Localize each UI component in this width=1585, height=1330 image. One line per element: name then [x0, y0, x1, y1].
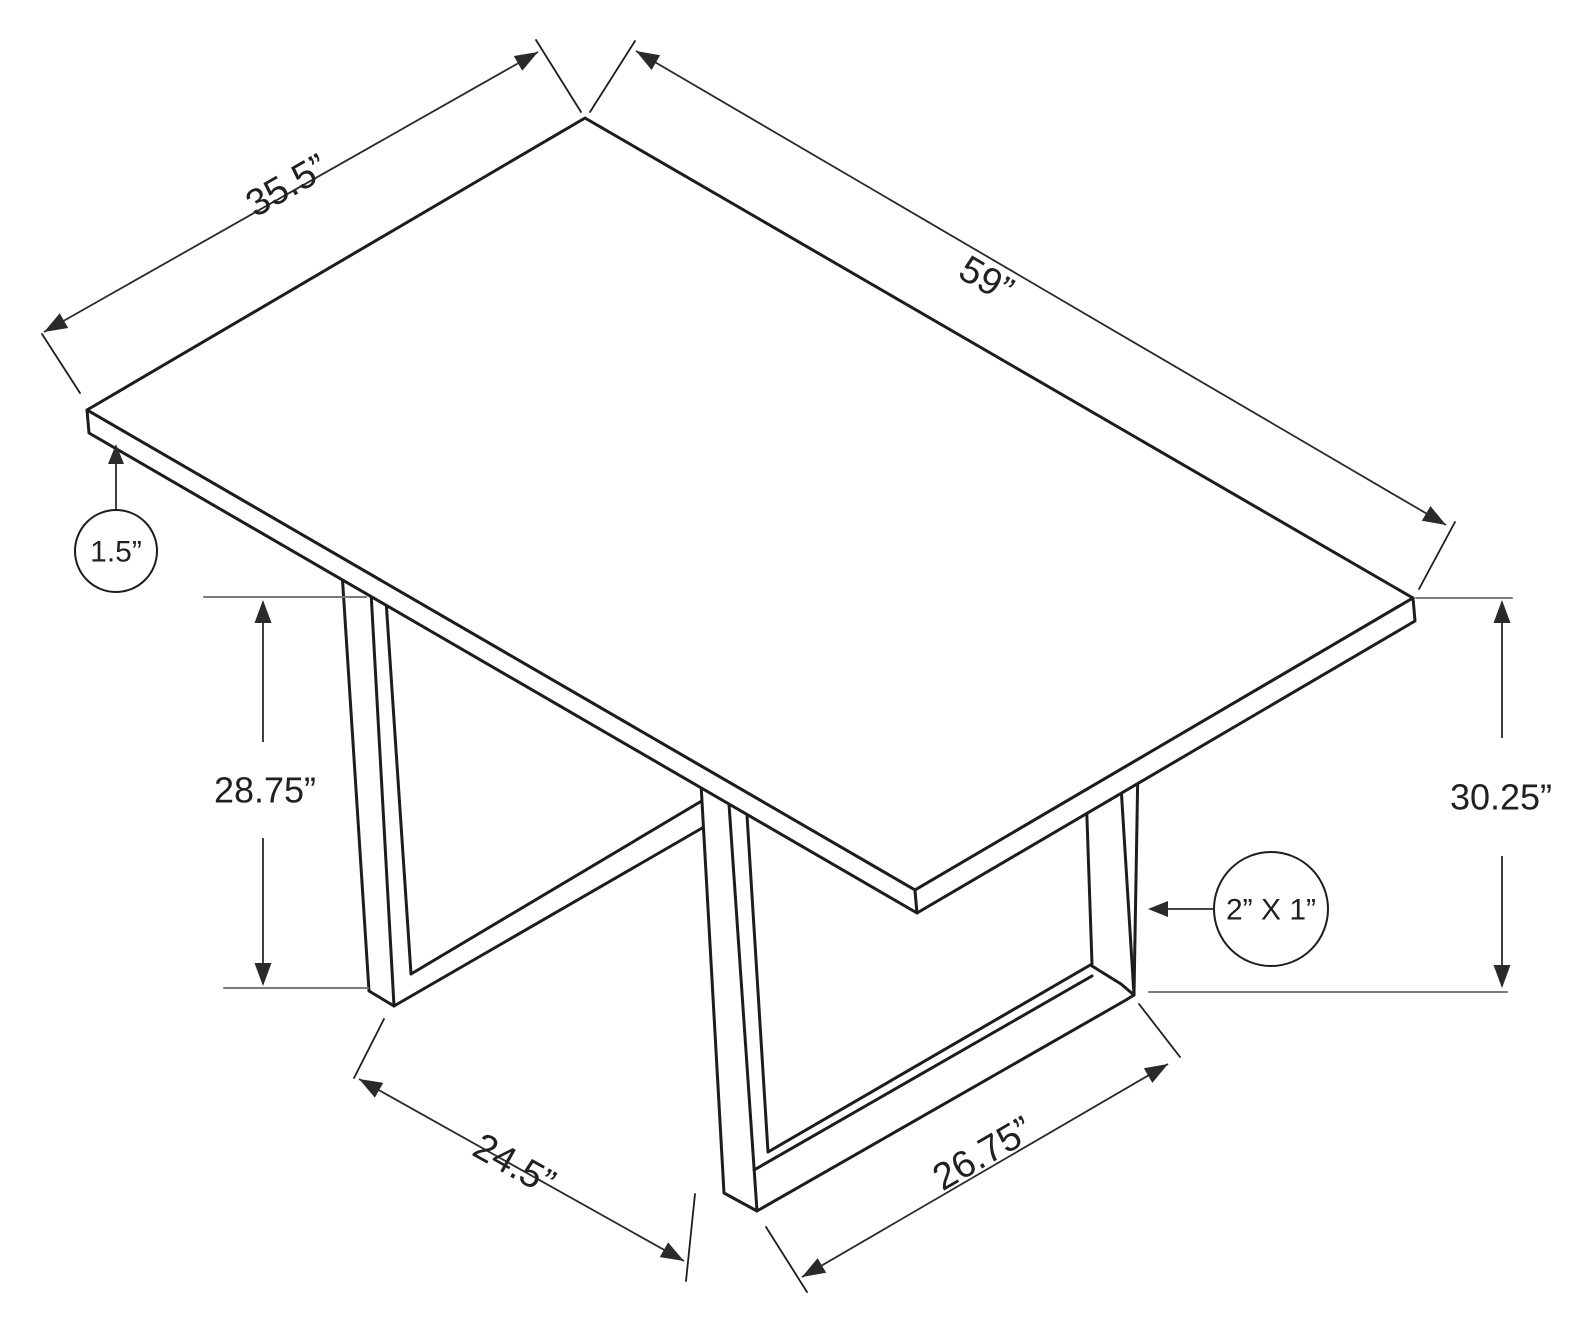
dim-tabletop-width-arrow-0: [44, 313, 68, 332]
dimension-diagram: 35.5”59”24.5”26.75”28.75”30.25”1.5”2” X …: [0, 0, 1585, 1330]
dim-tabletop-length-label: 59”: [952, 248, 1021, 312]
dim-leg-clearance-label: 24.5”: [466, 1125, 562, 1204]
callout-tabletop-thickness-label: 1.5”: [90, 536, 142, 569]
callout-leg-tube-size-arrowhead: [1148, 901, 1168, 917]
dim-leg-base-depth-arrow-1: [1144, 1064, 1168, 1083]
extension-59-top: [590, 41, 635, 112]
dim-table-height-arrow-1: [1494, 965, 1511, 988]
callout-leg-tube-size-label: 2” X 1”: [1226, 894, 1316, 927]
extension-35-5-left: [42, 334, 80, 393]
dim-leg-base-depth-arrow-0: [802, 1258, 826, 1277]
dim-leg-base-depth-label: 26.75”: [926, 1109, 1040, 1200]
extension-35-5-top: [536, 40, 581, 112]
dim-leg-clearance-arrow-0: [359, 1079, 383, 1098]
dim-tabletop-length-arrow-1: [1422, 506, 1446, 525]
dim-table-height-label: 30.25”: [1450, 777, 1552, 818]
dim-tabletop-width-arrow-1: [514, 52, 538, 71]
extension-24-5-left: [354, 1019, 384, 1078]
extension-59-right: [1419, 522, 1455, 589]
extension-26-75-left: [766, 1227, 807, 1292]
dim-leg-height-arrow-1: [255, 963, 272, 986]
right-leg-rail-top-front-edge: [754, 976, 1092, 1170]
dim-table-height-arrow-0: [1494, 600, 1511, 623]
extension-26-75-right: [1139, 1004, 1180, 1057]
extension-24-5-right: [686, 1194, 695, 1281]
diagram-svg: 35.5”59”24.5”26.75”28.75”30.25”1.5”2” X …: [0, 0, 1585, 1330]
dim-tabletop-length-arrow-0: [636, 51, 660, 70]
dim-leg-height-label: 28.75”: [214, 770, 316, 811]
dim-leg-height-arrow-0: [255, 600, 272, 623]
dim-tabletop-width-label: 35.5”: [239, 146, 335, 225]
dim-leg-clearance-arrow-1: [660, 1242, 684, 1261]
